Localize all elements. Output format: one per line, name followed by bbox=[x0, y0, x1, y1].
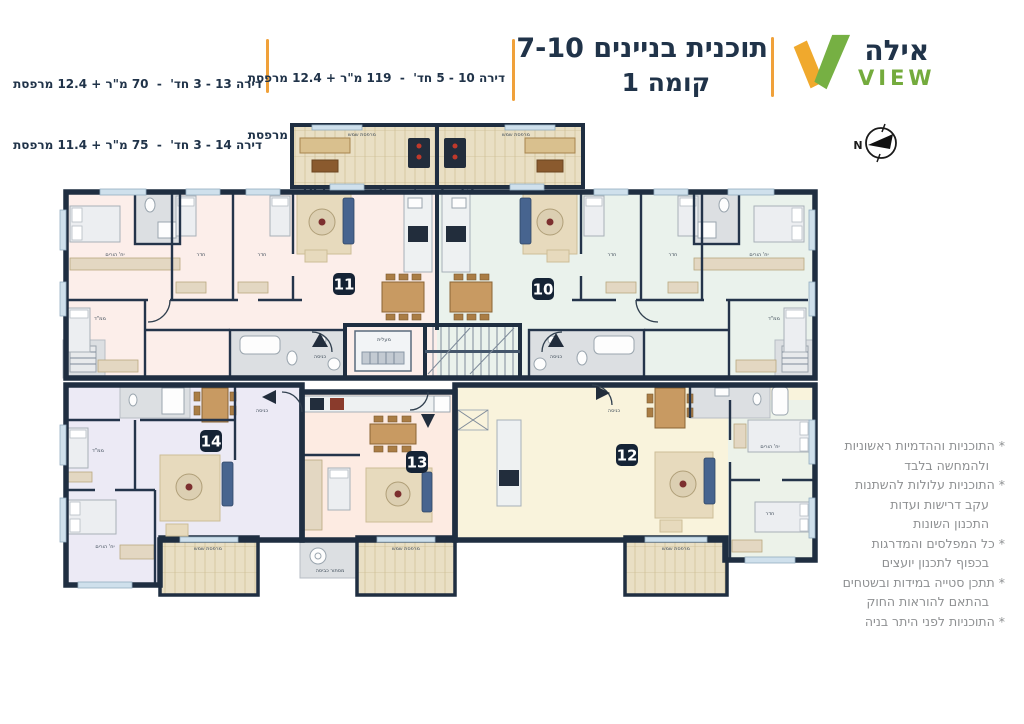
north-compass-icon: N bbox=[853, 124, 896, 162]
floor-plan: יח' הוריםחדרחדרממ"דיח' הוריםחדרחדרממ"דיח… bbox=[0, 0, 1024, 724]
room-label: מרפסת שמש bbox=[662, 546, 690, 552]
apartment-badge-label: 14 bbox=[201, 433, 222, 451]
room-label: כניסה bbox=[608, 408, 621, 414]
room-label: חדר bbox=[608, 252, 617, 258]
room-label: ממ"ד bbox=[768, 316, 780, 322]
room-label: חדר bbox=[669, 252, 678, 258]
room-label: מרפסת שמש bbox=[194, 546, 222, 552]
room-label: יח' הורים bbox=[95, 544, 114, 550]
room-label: כניסה bbox=[314, 354, 327, 360]
room-label: יח' הורים bbox=[749, 252, 768, 258]
apartment-badge-label: 13 bbox=[407, 454, 428, 472]
room-label: מרפסת שמש bbox=[502, 132, 530, 138]
room-label: יח' הורים bbox=[760, 444, 779, 450]
room-label: מסתור כביסה bbox=[316, 568, 345, 574]
room-label: כניסה bbox=[550, 354, 563, 360]
apartment-badge-label: 11 bbox=[334, 276, 355, 294]
apartment-badge-10: 10 bbox=[532, 278, 554, 300]
apartment-badge-label: 12 bbox=[617, 447, 638, 465]
room-label: מרפסת שמש bbox=[348, 132, 376, 138]
apartment-badge-11: 11 bbox=[333, 273, 355, 295]
room-label: מרפסת שמש bbox=[392, 546, 420, 552]
apartment-badge-12: 12 bbox=[616, 444, 638, 466]
room-label: חדר bbox=[197, 252, 206, 258]
room-label: מעלית bbox=[377, 337, 391, 343]
room-label: חדר bbox=[766, 511, 775, 517]
room-label: יח' הורים bbox=[105, 252, 124, 258]
apartment-badge-label: 10 bbox=[533, 281, 554, 299]
apartment-badge-13: 13 bbox=[406, 451, 428, 473]
compass-north-label: N bbox=[853, 139, 862, 152]
room-label: ממ"ד bbox=[92, 448, 104, 454]
room-label: ממ"ד bbox=[94, 316, 106, 322]
floor-plan-sheet: אילה VIEW תוכנית בניינים 7-10 קומה 1 דיר… bbox=[0, 0, 1024, 724]
room-label: כניסה bbox=[256, 408, 269, 414]
apartment-badge-14: 14 bbox=[200, 430, 222, 452]
room-label: חדר bbox=[258, 252, 267, 258]
